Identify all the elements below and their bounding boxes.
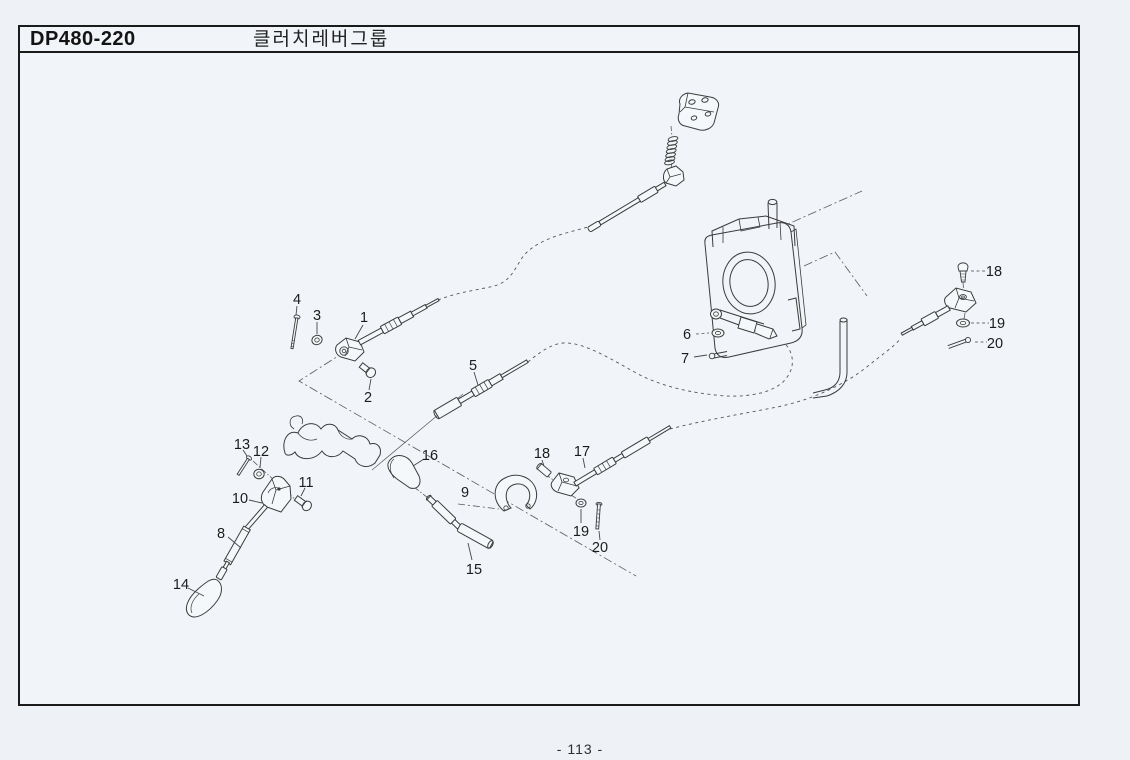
callout-14: 14 bbox=[173, 577, 189, 593]
spring bbox=[664, 136, 678, 166]
cable-17 bbox=[551, 424, 672, 496]
washer-12 bbox=[254, 469, 264, 479]
screw-20-center bbox=[594, 502, 602, 529]
callout-2: 2 bbox=[364, 390, 372, 406]
callout-16: 16 bbox=[422, 448, 438, 464]
washer-6 bbox=[712, 329, 724, 337]
callout-11: 11 bbox=[298, 475, 313, 491]
bolt-11 bbox=[293, 494, 313, 512]
lever-15 bbox=[425, 494, 495, 550]
callout-15: 15 bbox=[466, 562, 482, 578]
fork-9 bbox=[495, 475, 537, 511]
callout-4: 4 bbox=[293, 292, 301, 308]
callout-20: 20 bbox=[987, 336, 1003, 352]
cotter-pin-20-right bbox=[947, 337, 971, 350]
callout-12: 12 bbox=[253, 444, 269, 460]
callout-19: 19 bbox=[573, 524, 589, 540]
callout-20: 20 bbox=[592, 540, 608, 556]
top-rod bbox=[587, 166, 684, 233]
callout-18: 18 bbox=[534, 446, 550, 462]
pin-4 bbox=[289, 315, 300, 350]
callout-19: 19 bbox=[989, 316, 1005, 332]
pin-13 bbox=[236, 455, 253, 476]
callout-layer: 1234567891011121314151617181819192020 bbox=[173, 264, 1005, 593]
knob-14 bbox=[186, 579, 221, 617]
washer-19-center bbox=[576, 499, 586, 507]
callout-17: 17 bbox=[574, 444, 590, 460]
callout-1: 1 bbox=[360, 310, 368, 326]
leader-lines bbox=[188, 271, 989, 596]
bolt-2 bbox=[358, 361, 378, 379]
exploded-diagram: 1234567891011121314151617181819192020 bbox=[0, 0, 1130, 760]
callout-7: 7 bbox=[681, 351, 689, 367]
callout-10: 10 bbox=[232, 491, 248, 507]
cable-end-right bbox=[900, 288, 976, 338]
callout-13: 13 bbox=[234, 437, 250, 453]
callout-6: 6 bbox=[683, 327, 691, 343]
bolt-18-right bbox=[958, 263, 968, 282]
top-clevis-bracket bbox=[678, 93, 718, 130]
washer-3 bbox=[311, 334, 324, 346]
page-number: - 113 - bbox=[30, 741, 1130, 757]
hand-lever-8 bbox=[216, 505, 267, 580]
knob-16 bbox=[388, 456, 420, 489]
clutch-cable-5 bbox=[433, 357, 530, 420]
housing-hook bbox=[813, 318, 847, 398]
washer-19-right bbox=[957, 319, 970, 327]
callout-9: 9 bbox=[461, 485, 469, 501]
cable-routing-lines bbox=[438, 227, 901, 429]
callout-18: 18 bbox=[986, 264, 1002, 280]
mount-bracket bbox=[284, 416, 381, 467]
callout-5: 5 bbox=[469, 358, 477, 374]
callout-3: 3 bbox=[313, 308, 321, 324]
callout-8: 8 bbox=[217, 526, 225, 542]
clutch-cable-1 bbox=[336, 296, 441, 361]
